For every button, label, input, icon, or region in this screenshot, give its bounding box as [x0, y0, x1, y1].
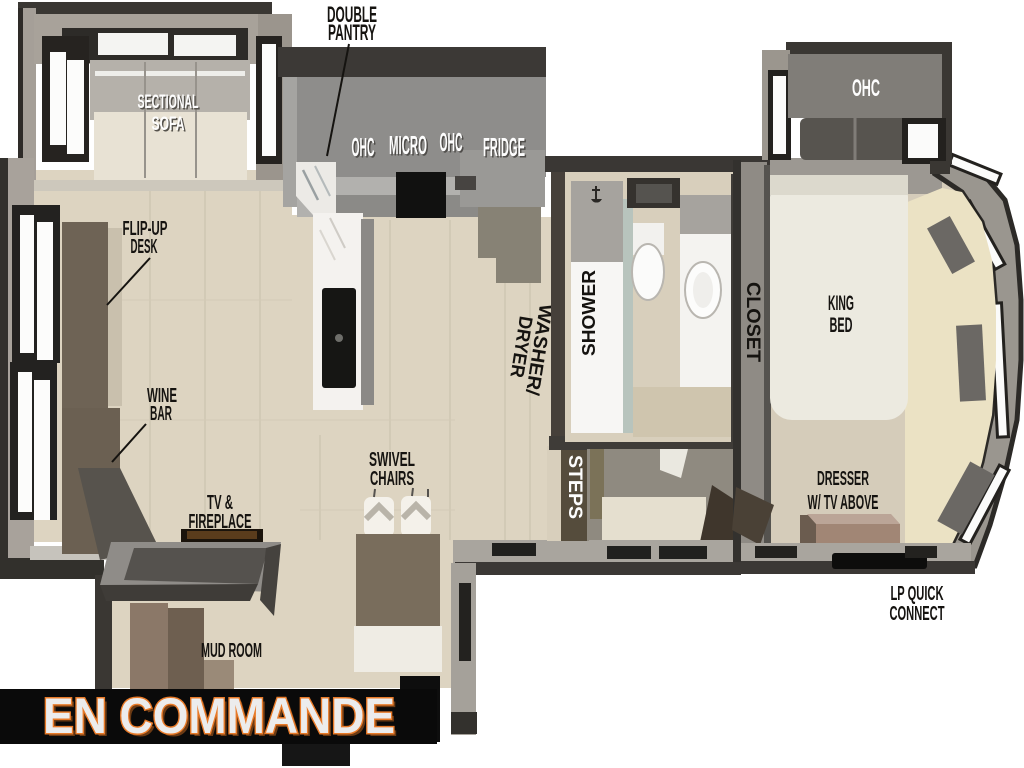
svg-text:DRESSER: DRESSER	[817, 468, 869, 490]
svg-text:CONNECT: CONNECT	[890, 603, 945, 625]
svg-text:PANTRY: PANTRY	[328, 20, 376, 45]
svg-text:SECTIONAL: SECTIONAL	[138, 92, 199, 113]
svg-text:OHC: OHC	[352, 132, 375, 162]
svg-text:OHC: OHC	[852, 75, 880, 102]
svg-text:STEPS: STEPS	[564, 455, 585, 519]
svg-text:MUD ROOM: MUD ROOM	[201, 640, 262, 662]
svg-text:KING: KING	[828, 292, 854, 315]
svg-text:LP QUICK: LP QUICK	[891, 583, 944, 605]
svg-text:OHC: OHC	[440, 127, 463, 157]
svg-text:W/ TV ABOVE: W/ TV ABOVE	[808, 492, 879, 514]
svg-text:CHAIRS: CHAIRS	[370, 468, 414, 490]
svg-text:CLOSET: CLOSET	[742, 282, 763, 362]
svg-text:SHOWER: SHOWER	[579, 270, 599, 356]
svg-text:BED: BED	[830, 314, 853, 337]
svg-text:DESK: DESK	[131, 236, 158, 258]
svg-text:FRIDGE: FRIDGE	[483, 132, 525, 162]
svg-text:BAR: BAR	[150, 403, 172, 425]
svg-text:EN COMMANDE: EN COMMANDE	[43, 688, 395, 744]
svg-text:FIREPLACE: FIREPLACE	[189, 511, 252, 533]
svg-text:SOFA: SOFA	[152, 114, 185, 135]
svg-text:MICRO: MICRO	[389, 130, 427, 160]
